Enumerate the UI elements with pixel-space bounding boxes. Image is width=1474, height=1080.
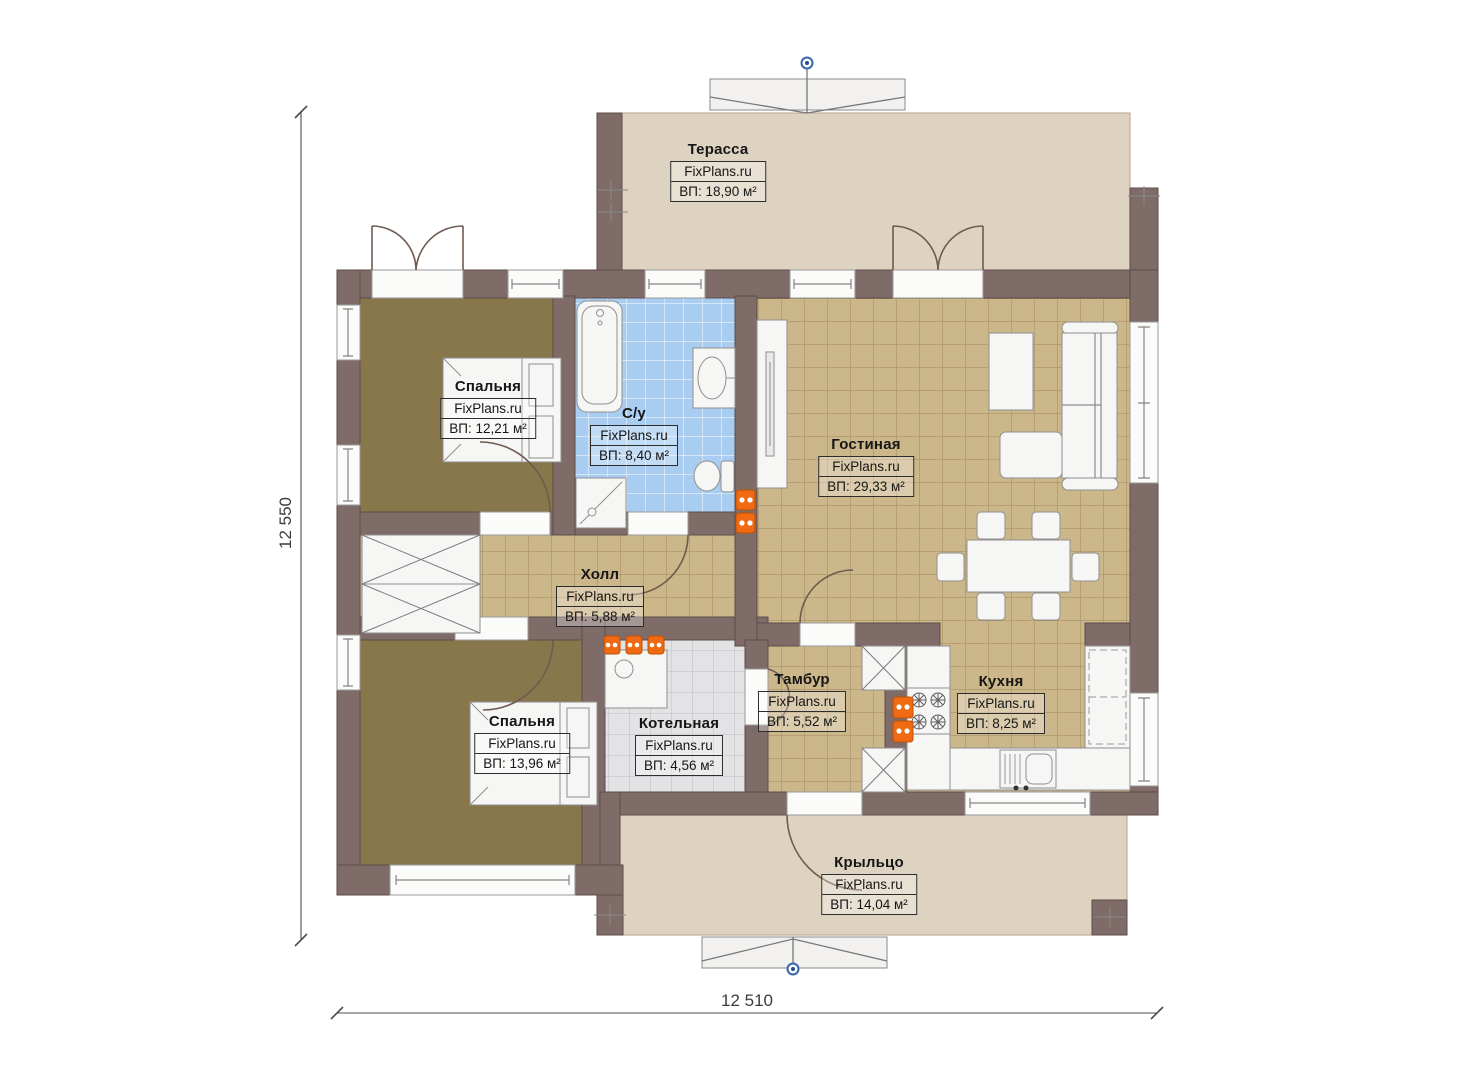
area-text: ВП: 8,40 м² <box>591 445 677 465</box>
area-text: ВП: 4,56 м² <box>636 755 722 775</box>
bathtub <box>577 301 622 412</box>
room-label-bathroom: С/у FixPlans.ru ВП: 8,40 м² <box>590 405 678 466</box>
brand-text: FixPlans.ru <box>671 162 765 181</box>
brand-text: FixPlans.ru <box>822 875 916 894</box>
room-label-terrace: Терасса FixPlans.ru ВП: 18,90 м² <box>670 141 766 202</box>
coffee-table <box>989 333 1033 410</box>
dimension-height-label: 12 550 <box>276 497 296 549</box>
area-text: ВП: 18,90 м² <box>671 181 765 201</box>
bedroom1-french-door <box>372 226 463 270</box>
brand-text: FixPlans.ru <box>557 587 643 606</box>
room-label-hall: Холл FixPlans.ru ВП: 5,88 м² <box>556 566 644 627</box>
label-box: FixPlans.ru ВП: 18,90 м² <box>670 161 766 202</box>
brand-text: FixPlans.ru <box>636 736 722 755</box>
label-box: FixPlans.ru ВП: 5,52 м² <box>758 691 846 732</box>
toilet <box>694 461 734 492</box>
kitchen-sink <box>1000 750 1056 791</box>
room-name: Котельная <box>639 715 719 732</box>
room-name: Терасса <box>688 141 749 158</box>
closet <box>362 535 480 633</box>
gable-top <box>710 58 905 114</box>
label-box: FixPlans.ru ВП: 8,25 м² <box>957 693 1045 734</box>
area-text: ВП: 13,96 м² <box>475 753 569 773</box>
room-label-bedroom2: Спальня FixPlans.ru ВП: 13,96 м² <box>474 713 570 774</box>
radiator-boiler <box>604 636 664 654</box>
label-box: FixPlans.ru ВП: 5,88 м² <box>556 586 644 627</box>
gable-bottom <box>702 937 887 975</box>
brand-text: FixPlans.ru <box>759 692 845 711</box>
room-name: С/у <box>622 405 646 422</box>
room-name: Крыльцо <box>834 854 904 871</box>
room-label-tambour: Тамбур FixPlans.ru ВП: 5,52 м² <box>758 671 846 732</box>
label-box: FixPlans.ru ВП: 29,33 м² <box>818 456 914 497</box>
dimension-width-label: 12 510 <box>721 991 773 1011</box>
label-box: FixPlans.ru ВП: 13,96 м² <box>474 733 570 774</box>
brand-text: FixPlans.ru <box>475 734 569 753</box>
brand-text: FixPlans.ru <box>958 694 1044 713</box>
brand-text: FixPlans.ru <box>591 426 677 445</box>
room-label-living: Гостиная FixPlans.ru ВП: 29,33 м² <box>818 436 914 497</box>
floor-plan-page: Терасса FixPlans.ru ВП: 18,90 м² Спальня… <box>0 0 1474 1080</box>
shower <box>576 478 626 528</box>
boiler-unit <box>605 650 667 708</box>
room-name: Холл <box>581 566 619 583</box>
area-text: ВП: 12,21 м² <box>441 418 535 438</box>
room-label-bedroom1: Спальня FixPlans.ru ВП: 12,21 м² <box>440 378 536 439</box>
label-box: FixPlans.ru ВП: 14,04 м² <box>821 874 917 915</box>
brand-text: FixPlans.ru <box>819 457 913 476</box>
room-label-porch: Крыльцо FixPlans.ru ВП: 14,04 м² <box>821 854 917 915</box>
room-name: Спальня <box>455 378 521 395</box>
area-text: ВП: 8,25 м² <box>958 713 1044 733</box>
label-box: FixPlans.ru ВП: 4,56 м² <box>635 735 723 776</box>
area-text: ВП: 14,04 м² <box>822 894 916 914</box>
room-name: Тамбур <box>774 671 830 688</box>
area-text: ВП: 5,88 м² <box>557 606 643 626</box>
brand-text: FixPlans.ru <box>441 399 535 418</box>
room-label-kitchen: Кухня FixPlans.ru ВП: 8,25 м² <box>957 673 1045 734</box>
label-box: FixPlans.ru ВП: 12,21 м² <box>440 398 536 439</box>
label-box: FixPlans.ru ВП: 8,40 м² <box>590 425 678 466</box>
room-name: Спальня <box>489 713 555 730</box>
area-text: ВП: 5,52 м² <box>759 711 845 731</box>
room-label-boiler: Котельная FixPlans.ru ВП: 4,56 м² <box>635 715 723 776</box>
room-name: Гостиная <box>831 436 900 453</box>
sink-vanity <box>693 348 735 408</box>
tv-stand <box>757 320 787 488</box>
area-text: ВП: 29,33 м² <box>819 476 913 496</box>
room-name: Кухня <box>979 673 1024 690</box>
